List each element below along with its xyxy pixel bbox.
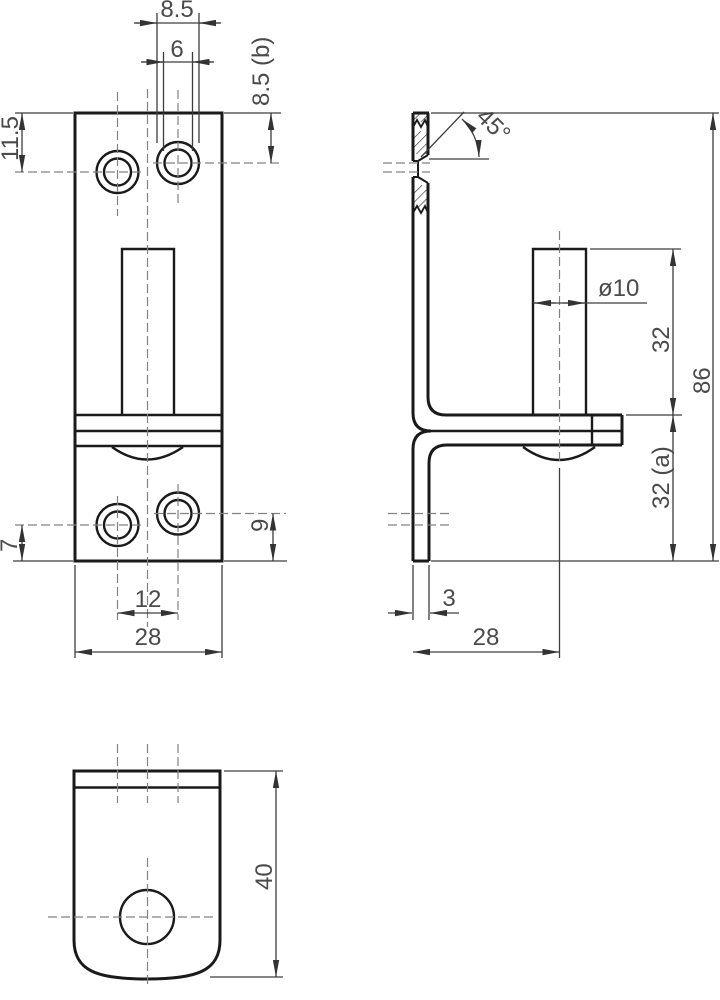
drawing-sheet: 8.5 6 8.5 (b) 11.5 7 9 12 28 <box>0 0 720 1000</box>
dim-top-right-offset-label: 8.5 (b) <box>248 37 275 106</box>
csk-hole-section <box>418 155 428 183</box>
side-plate-right-edge <box>428 183 446 415</box>
dim-bottom-left-offset-label: 7 <box>0 539 23 552</box>
dim-depth-label: 28 <box>473 624 500 651</box>
dim-width-label: 28 <box>135 624 162 651</box>
dim-hole-dia-label: 6 <box>170 36 183 63</box>
dim-bottom-right-offset-label: 9 <box>247 519 274 532</box>
dim-pin-length-label: 32 <box>648 326 675 353</box>
dim-hole-spacing-label: 12 <box>135 586 162 613</box>
section-hatch <box>414 131 428 154</box>
dim-top-left-offset-label: 11.5 <box>0 116 24 161</box>
section-hatch <box>414 185 428 208</box>
dim-total-height-label: 86 <box>689 367 716 394</box>
dim-chamfer-angle-label: 45° <box>471 103 516 148</box>
dim-length-label: 40 <box>251 863 278 890</box>
flange-bottom <box>429 445 622 561</box>
dim-thickness-label: 3 <box>442 585 455 612</box>
front-view: 8.5 6 8.5 (b) 11.5 7 9 12 28 <box>0 0 287 658</box>
bottom-view: 40 <box>48 744 283 988</box>
dim-lower-section-label: 32 (a) <box>648 446 675 509</box>
dim-csk-dia-label: 8.5 <box>160 0 193 23</box>
technical-drawing: 8.5 6 8.5 (b) 11.5 7 9 12 28 <box>0 0 720 1000</box>
dim-pin-dia-label: ø10 <box>598 275 639 302</box>
side-view: 45° ø10 32 32 (a) 86 3 28 <box>383 103 719 658</box>
